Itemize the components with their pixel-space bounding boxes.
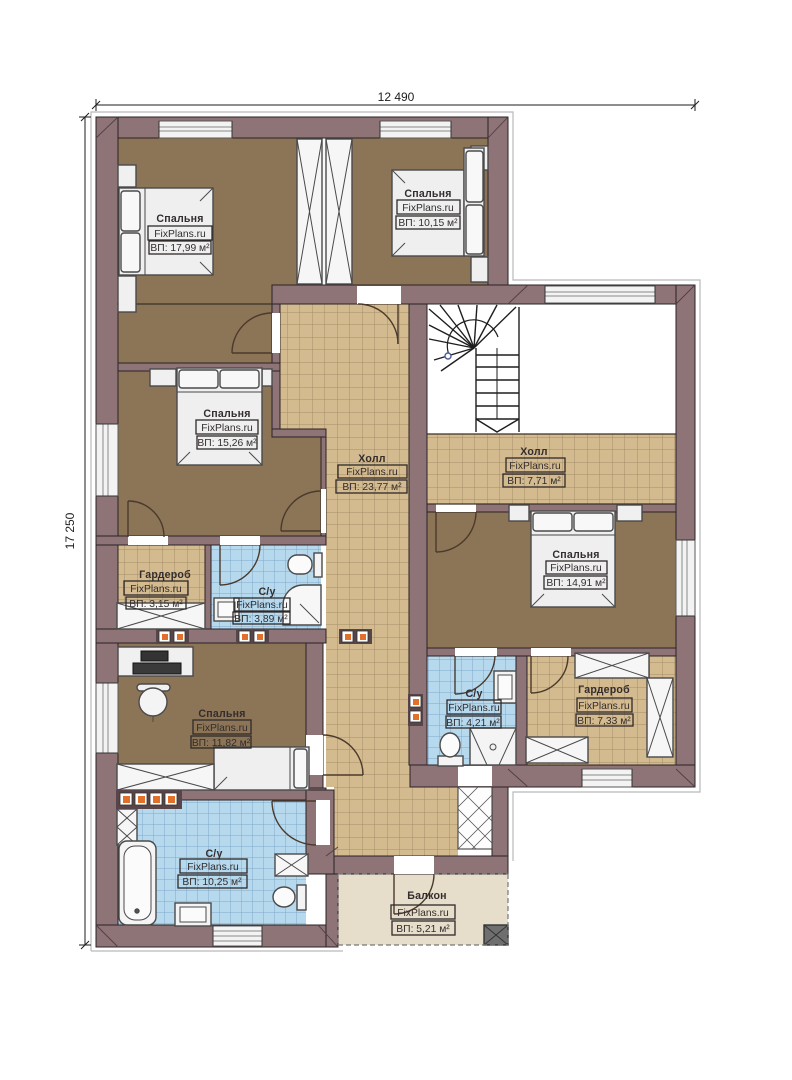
svg-text:Холл: Холл bbox=[358, 453, 385, 465]
svg-text:12 490: 12 490 bbox=[378, 90, 415, 104]
svg-text:ВП: 5,21 м²: ВП: 5,21 м² bbox=[396, 924, 450, 935]
svg-text:17 250: 17 250 bbox=[63, 512, 77, 549]
svg-text:ВП: 23,77 м²: ВП: 23,77 м² bbox=[342, 482, 402, 493]
svg-text:FixPlans.ru: FixPlans.ru bbox=[550, 563, 602, 574]
svg-text:FixPlans.ru: FixPlans.ru bbox=[578, 701, 630, 712]
svg-text:Балкон: Балкон bbox=[407, 890, 446, 902]
svg-text:FixPlans.ru: FixPlans.ru bbox=[509, 461, 561, 472]
svg-text:FixPlans.ru: FixPlans.ru bbox=[397, 908, 449, 919]
svg-text:FixPlans.ru: FixPlans.ru bbox=[196, 723, 248, 734]
svg-text:ВП: 15,26 м²: ВП: 15,26 м² bbox=[197, 438, 257, 449]
svg-text:FixPlans.ru: FixPlans.ru bbox=[201, 423, 253, 434]
svg-text:FixPlans.ru: FixPlans.ru bbox=[130, 584, 182, 595]
svg-text:FixPlans.ru: FixPlans.ru bbox=[187, 862, 239, 873]
svg-text:ВП: 7,71 м²: ВП: 7,71 м² bbox=[507, 476, 561, 487]
svg-text:ВП: 3,89 м²: ВП: 3,89 м² bbox=[234, 614, 288, 625]
svg-text:ВП: 14,91 м²: ВП: 14,91 м² bbox=[546, 578, 606, 589]
svg-text:Спальня: Спальня bbox=[203, 408, 250, 420]
svg-text:Спальня: Спальня bbox=[552, 549, 599, 561]
svg-text:Спальня: Спальня bbox=[198, 708, 245, 720]
svg-text:Гардероб: Гардероб bbox=[139, 569, 191, 581]
svg-text:Холл: Холл bbox=[520, 446, 547, 458]
svg-text:ВП: 10,15 м²: ВП: 10,15 м² bbox=[398, 218, 458, 229]
svg-text:Спальня: Спальня bbox=[156, 213, 203, 225]
svg-text:FixPlans.ru: FixPlans.ru bbox=[402, 203, 454, 214]
svg-text:FixPlans.ru: FixPlans.ru bbox=[236, 600, 288, 611]
svg-text:ВП: 7,33 м²: ВП: 7,33 м² bbox=[577, 716, 631, 727]
svg-text:С/у: С/у bbox=[465, 688, 482, 700]
svg-text:ВП: 10,25 м²: ВП: 10,25 м² bbox=[182, 877, 242, 888]
svg-text:FixPlans.ru: FixPlans.ru bbox=[346, 467, 398, 478]
svg-text:FixPlans.ru: FixPlans.ru bbox=[154, 229, 206, 240]
svg-text:С/у: С/у bbox=[205, 848, 222, 860]
svg-text:ВП: 11,82 м²: ВП: 11,82 м² bbox=[192, 738, 251, 749]
svg-text:ВП: 4,21 м²: ВП: 4,21 м² bbox=[446, 718, 500, 729]
svg-text:С/у: С/у bbox=[258, 586, 275, 598]
svg-text:FixPlans.ru: FixPlans.ru bbox=[448, 703, 500, 714]
svg-text:Спальня: Спальня bbox=[404, 188, 451, 200]
svg-text:Гардероб: Гардероб bbox=[578, 684, 630, 696]
svg-text:ВП: 3,15 м²: ВП: 3,15 м² bbox=[129, 599, 183, 610]
svg-text:ВП: 17,99 м²: ВП: 17,99 м² bbox=[150, 243, 210, 254]
